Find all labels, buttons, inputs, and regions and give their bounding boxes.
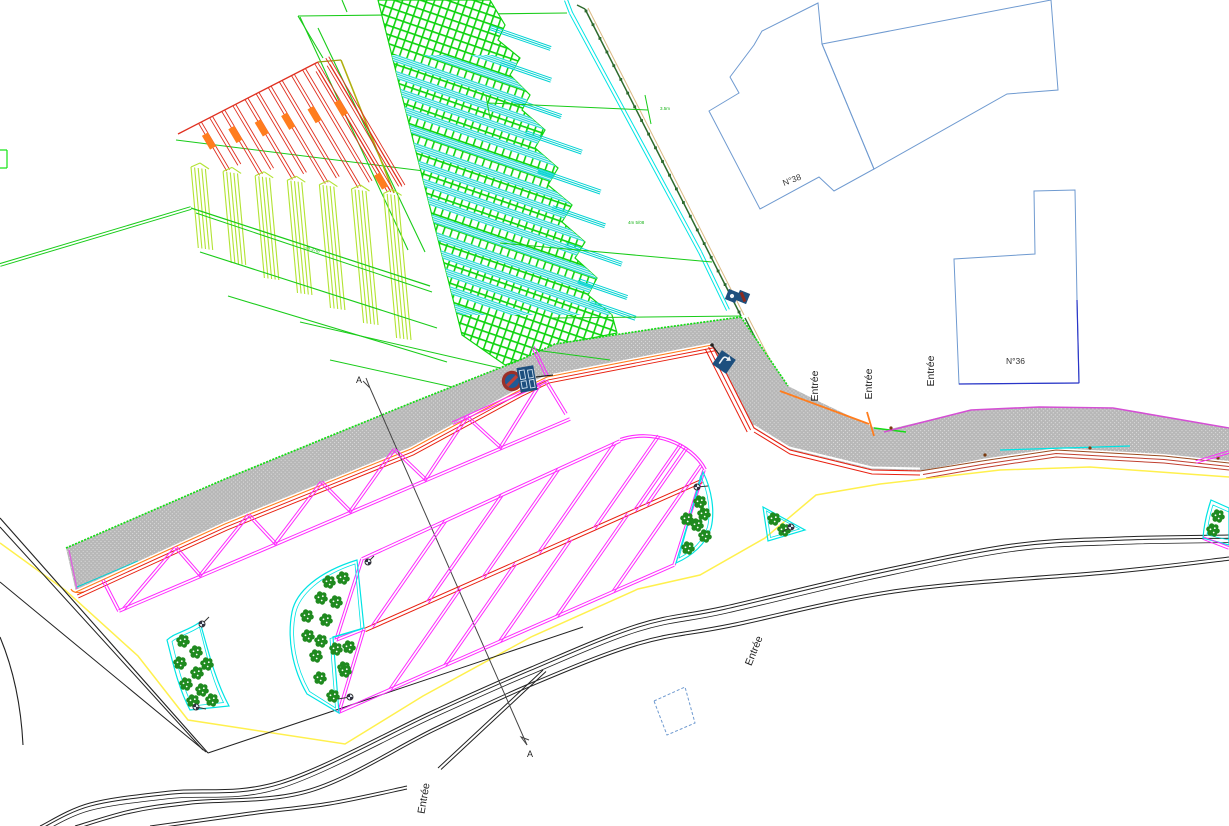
svg-text:Entrée: Entrée xyxy=(863,368,875,399)
svg-text:3.5m: 3.5m xyxy=(660,106,670,111)
svg-text:A: A xyxy=(356,375,362,385)
svg-text:Entrée: Entrée xyxy=(925,355,937,386)
svg-text:4m 5/08: 4m 5/08 xyxy=(628,220,645,225)
svg-text:Entrée: Entrée xyxy=(809,370,821,401)
svg-text:A: A xyxy=(527,749,533,759)
svg-text:N°36: N°36 xyxy=(1006,356,1025,366)
